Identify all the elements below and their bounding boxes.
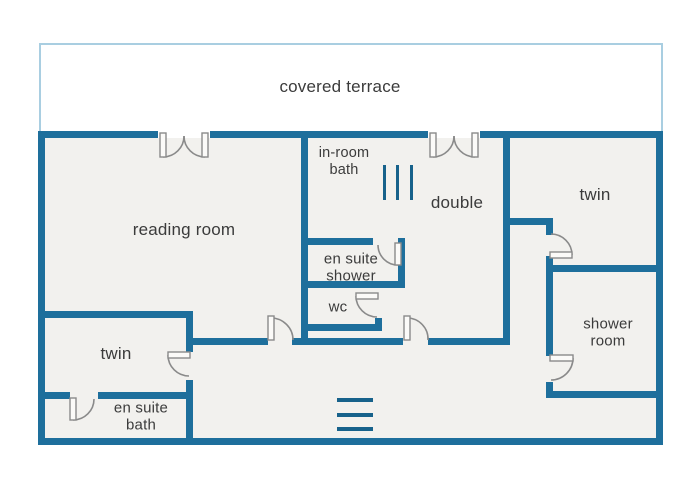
in-room-bath-label: in-room bath (304, 145, 384, 179)
wall-corridor-north-a (193, 338, 268, 345)
wall-en-suite-shower-top (301, 238, 373, 245)
terrace-label: covered terrace (279, 77, 400, 97)
wall-shower-room-bottom (546, 391, 656, 398)
en-suite-shower-label: en suite shower (306, 251, 396, 286)
partition-line (396, 165, 399, 200)
wall-corridor-north-c (428, 338, 510, 345)
double-label: double (431, 193, 483, 213)
wall-shower-room-top (546, 265, 656, 272)
wall-twin-top-west-a (546, 218, 553, 235)
en-suite-bath-label: en suite bath (101, 400, 181, 435)
steps-line (337, 427, 373, 431)
twin-top-label: twin (579, 185, 610, 205)
steps-line (337, 413, 373, 417)
wall-en-suite-bath-top-b (98, 392, 193, 399)
terrace-door-opening-reading-room (158, 131, 210, 138)
wall-twin-bottom-right-lower (186, 380, 193, 438)
floor-plan: covered terrace reading room in-room bat… (0, 0, 700, 500)
wc-label: wc (329, 298, 348, 315)
partition-line (410, 165, 413, 200)
wall-corridor-north-b (292, 338, 403, 345)
wall-en-suite-bath-top-a (45, 392, 70, 399)
steps-line (337, 398, 373, 402)
wall-double-east (503, 138, 510, 345)
wall-wc-bottom (308, 324, 382, 331)
shower-room-label: shower room (568, 316, 648, 351)
reading-room-label: reading room (133, 220, 236, 240)
wall-twin-bottom-top (45, 311, 193, 318)
wall-twin-bottom-right-upper (186, 311, 193, 352)
twin-bottom-label: twin (100, 344, 131, 364)
terrace-door-opening-double (428, 131, 480, 138)
